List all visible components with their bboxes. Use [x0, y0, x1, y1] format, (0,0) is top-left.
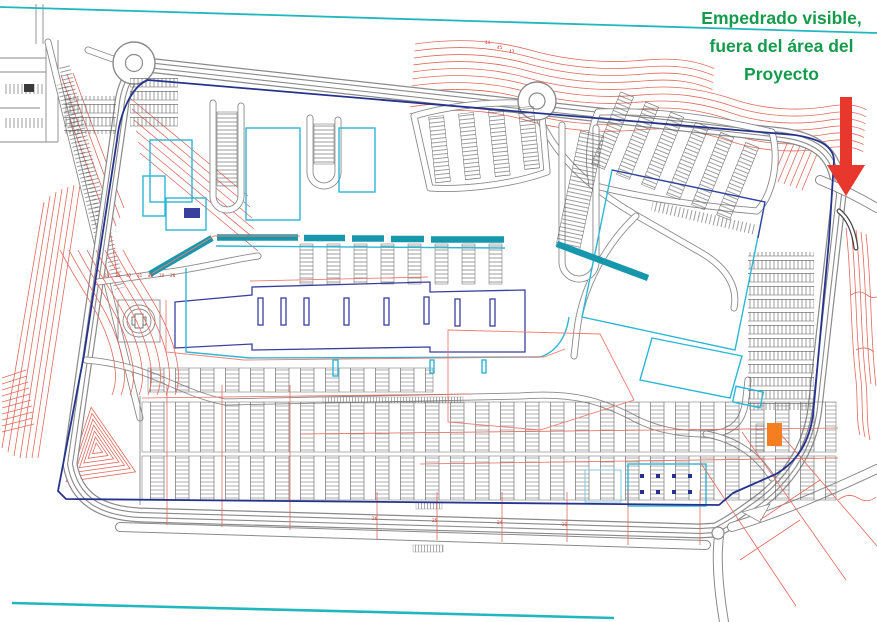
building-tower	[339, 128, 375, 192]
section-label: 34	[104, 273, 110, 278]
section-label: 32	[126, 273, 132, 278]
building-main-mall	[175, 246, 569, 376]
building-small-northwest	[150, 140, 192, 202]
section-label: 24	[497, 520, 503, 525]
site-plan-canvas: 26 25 24 21 34 33 32 31 30 29 28 44 45 4…	[0, 0, 877, 622]
contour-label: 44	[485, 40, 491, 45]
site-plan-drawing: 26 25 24 21 34 33 32 31 30 29 28 44 45 4…	[0, 0, 877, 622]
section-label: 21	[562, 522, 568, 527]
annotation-line: fuera del área del	[686, 32, 877, 60]
section-label: 33	[115, 273, 121, 278]
highlight-marker-orange	[767, 423, 782, 446]
section-label: 31	[137, 273, 143, 278]
section-label: 30	[148, 273, 154, 278]
section-label: 28	[170, 273, 176, 278]
building-north-block	[246, 128, 300, 220]
section-label: 29	[159, 273, 165, 278]
annotation-line: Empedrado visible,	[686, 4, 877, 32]
utility-block	[24, 84, 34, 92]
contour-label: 45	[497, 45, 503, 50]
annotation-empedrado: Empedrado visible, fuera del área del Pr…	[686, 4, 877, 88]
annotation-line: Proyecto	[686, 60, 877, 88]
survey-line-bottom	[12, 603, 614, 618]
contour-label: 43	[509, 49, 515, 54]
section-label: 25	[432, 518, 438, 523]
section-label: 26	[372, 516, 378, 521]
plaza-fountain	[118, 300, 160, 342]
